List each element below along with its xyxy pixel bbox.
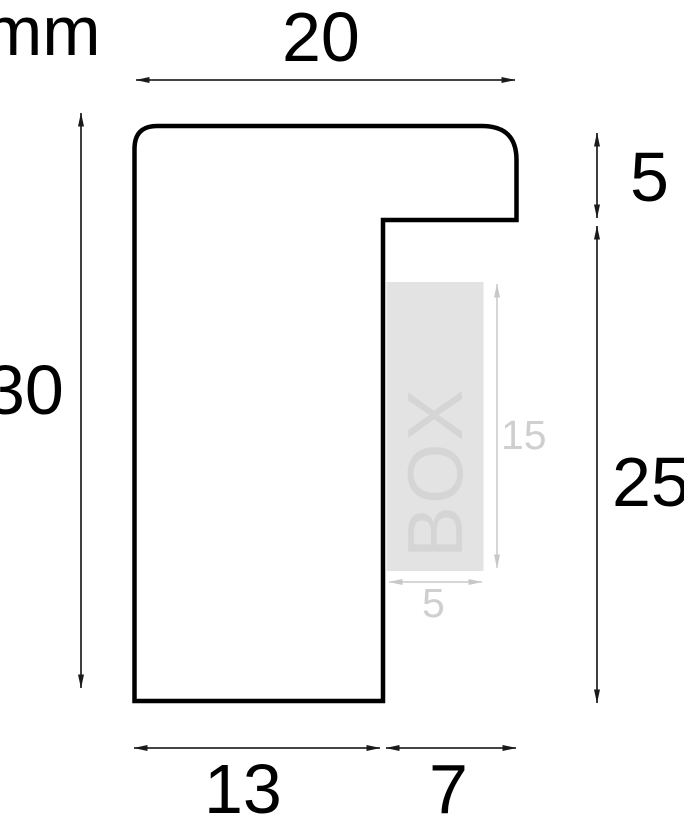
dim-label-bottom-right-width: 7 [429, 754, 468, 824]
dim-label-lower-height: 25 [612, 447, 684, 517]
insert-box-label: BOX [387, 282, 484, 571]
unit-label: mm [0, 0, 101, 66]
profile-drawing-canvas [0, 0, 684, 828]
dim-label-total-width: 20 [282, 2, 360, 72]
insert-box-label-text: BOX [391, 387, 479, 558]
dim-label-total-height: 30 [0, 355, 64, 425]
dim-label-bottom-left-width: 13 [204, 754, 282, 824]
dim-label-insert-width: 5 [422, 583, 445, 624]
moulding-profile-diagram: BOX mm 20 30 5 25 13 7 15 5 [0, 0, 684, 828]
dim-label-lip-height: 5 [630, 142, 669, 212]
dim-label-insert-depth: 15 [501, 415, 547, 456]
